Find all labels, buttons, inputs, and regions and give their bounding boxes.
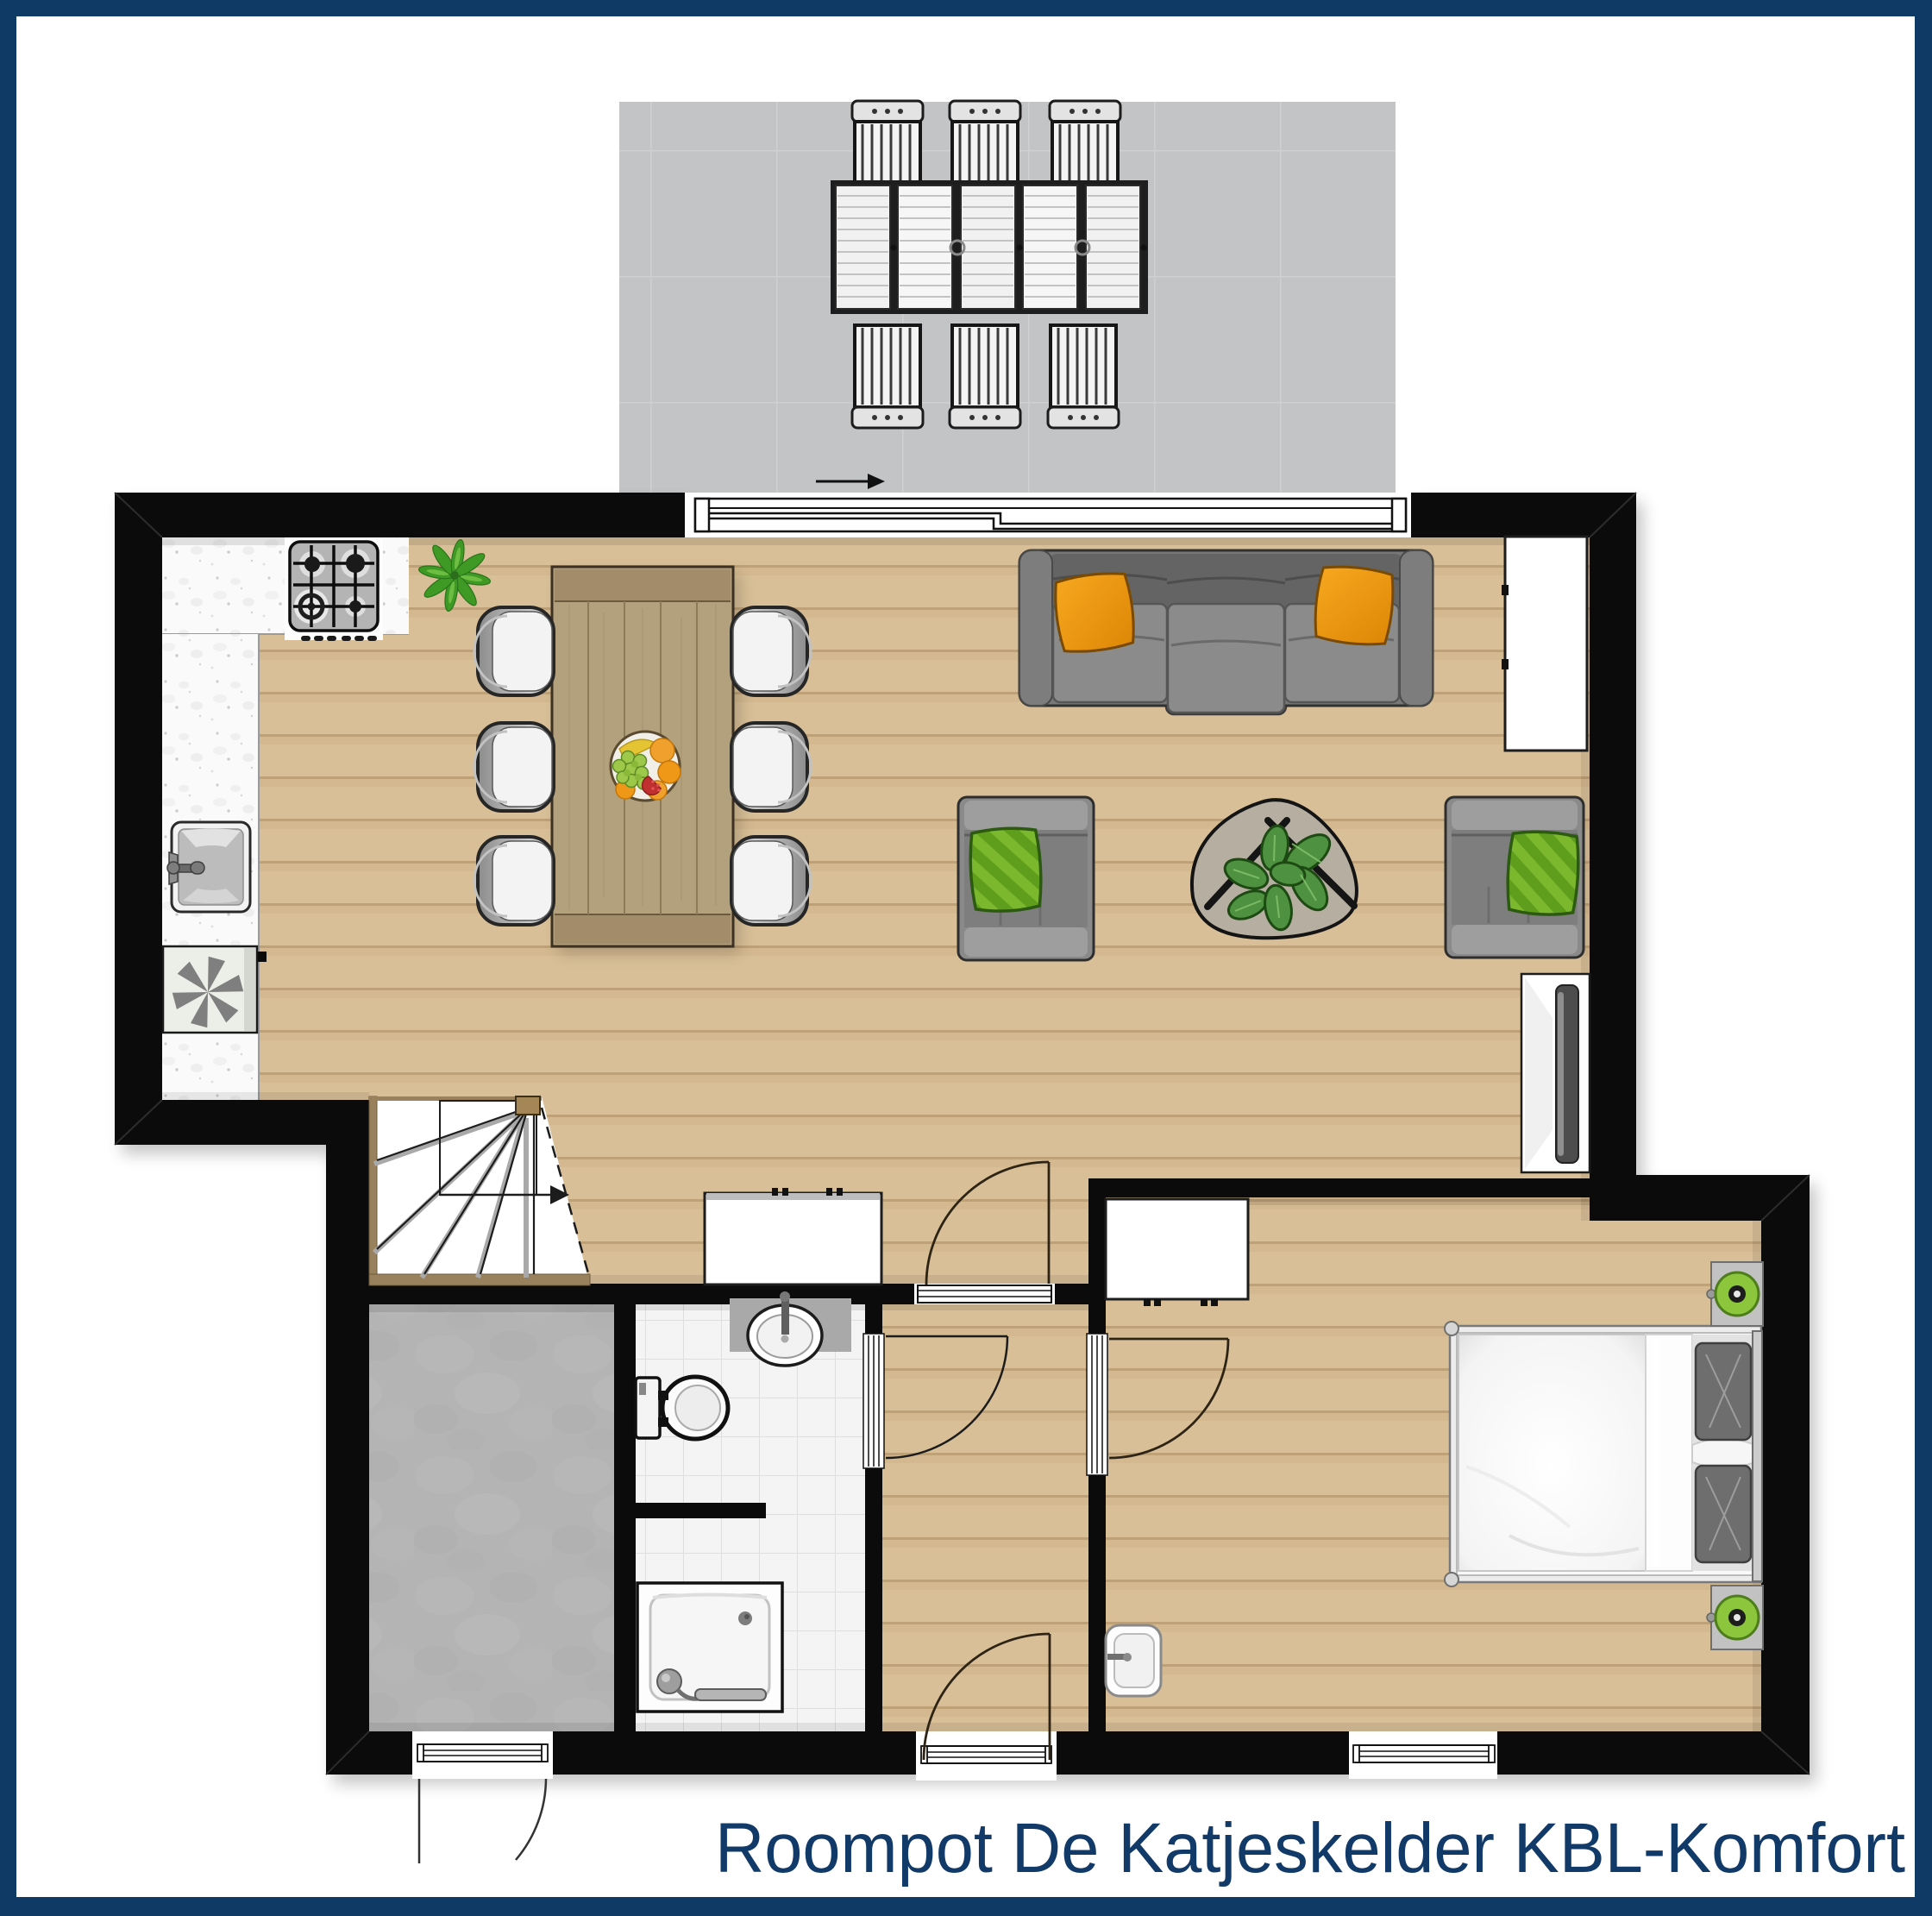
svg-text:Roompot De Katjeskelder KBL-Ko: Roompot De Katjeskelder KBL-Komfort — [715, 1809, 1905, 1888]
